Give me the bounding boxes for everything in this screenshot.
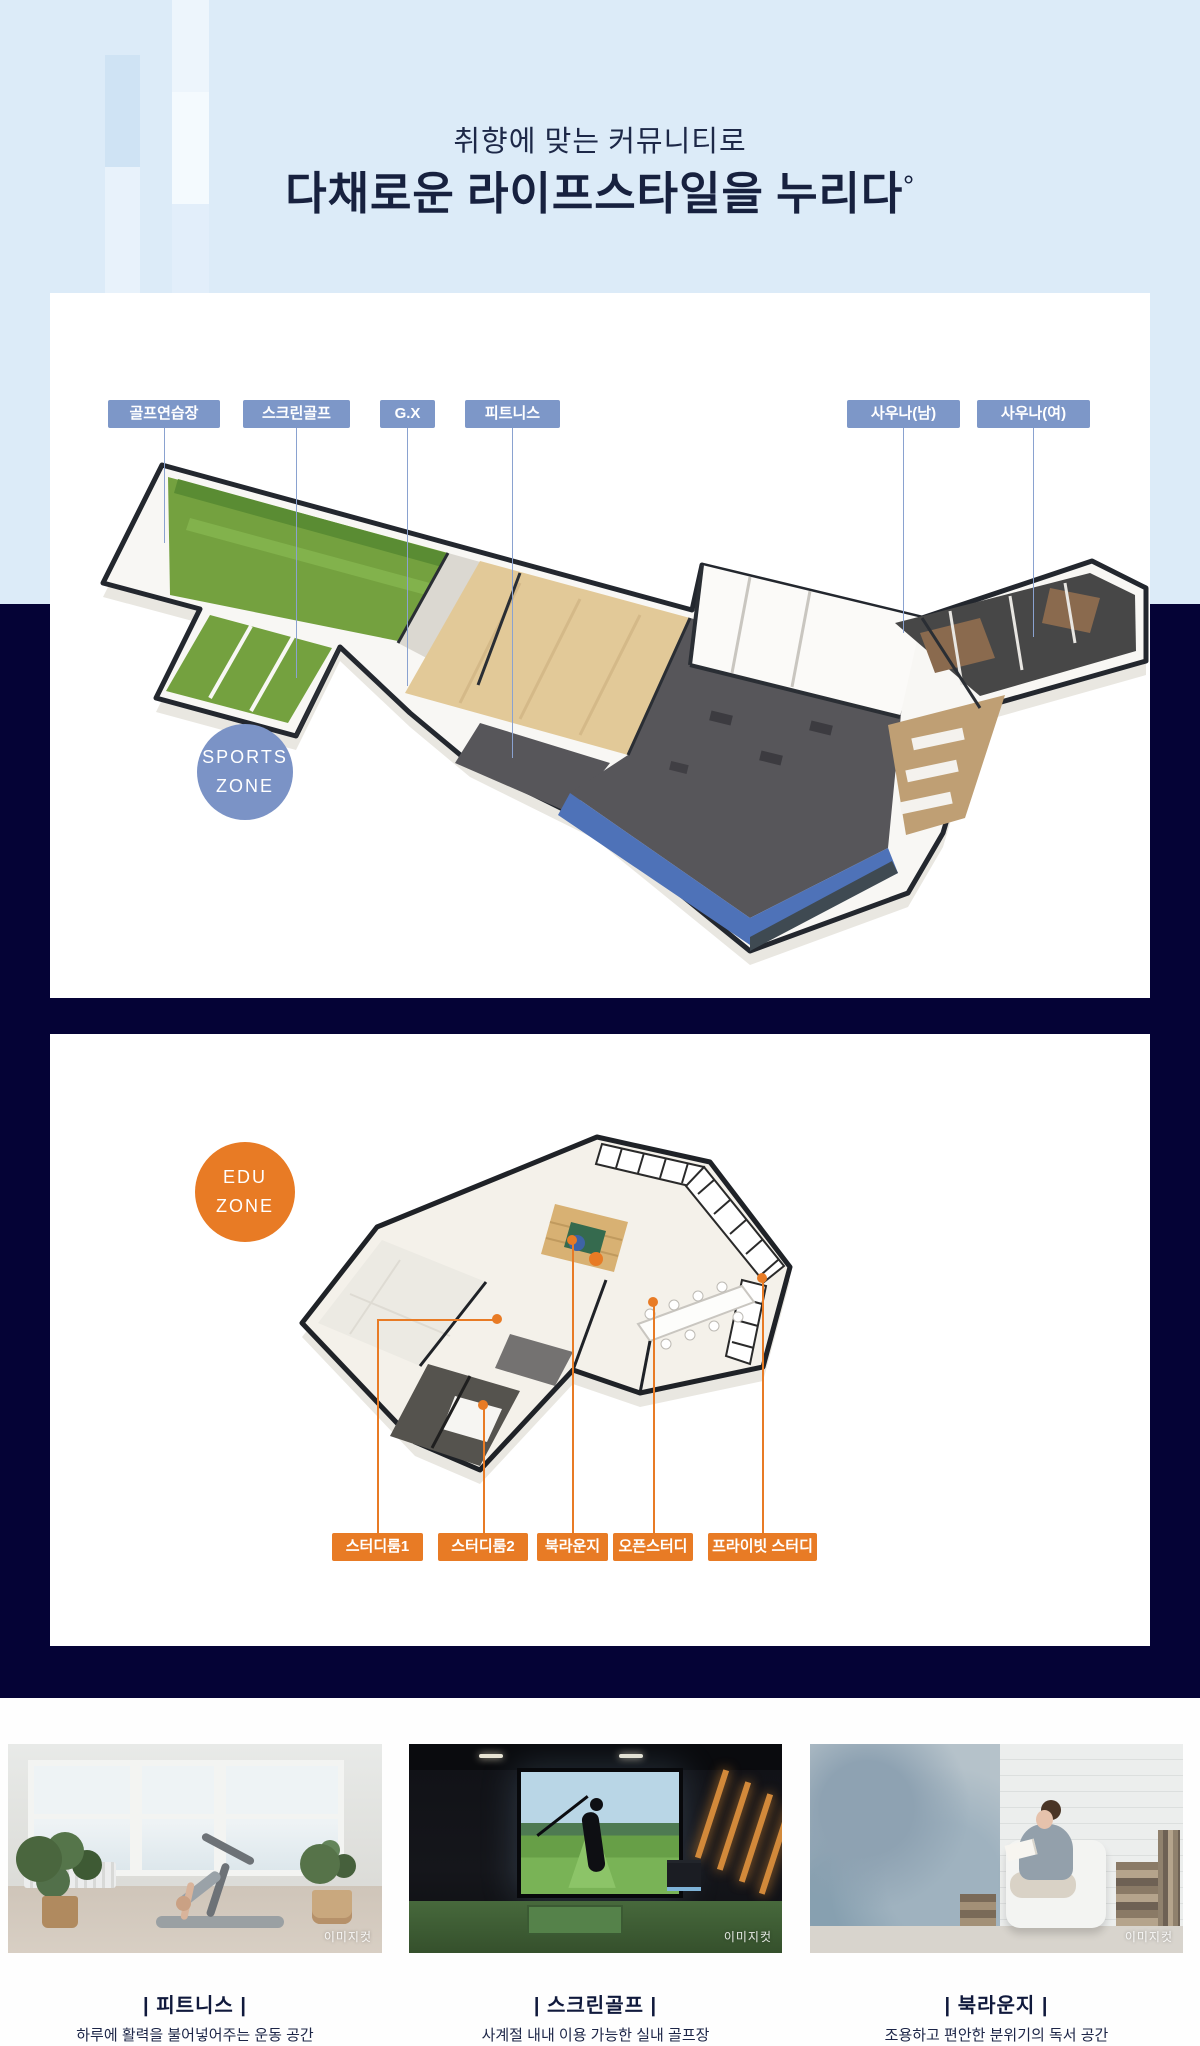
leader-dot-booklounge xyxy=(567,1235,577,1245)
reading-woman xyxy=(1036,1810,1053,1829)
badge-line: ZONE xyxy=(195,1192,295,1221)
card-desc-fitness: 하루에 활력을 불어넣어주는 운동 공간 xyxy=(8,2024,382,2046)
yoga-person xyxy=(176,1896,191,1911)
facility-label-sauna-men: 사우나(남) xyxy=(847,400,960,428)
facility-label-privatestudy: 프라이빗 스터디 xyxy=(708,1533,817,1561)
tee-mat xyxy=(527,1905,623,1935)
leader-line-fitness xyxy=(512,428,513,758)
badge-line: EDU xyxy=(195,1163,295,1192)
badge-line: SPORTS xyxy=(197,743,293,772)
plant xyxy=(300,1844,340,1884)
edu-zone-badge: EDU ZONE xyxy=(195,1142,295,1242)
page-subtitle: 취향에 맞는 커뮤니티로 xyxy=(0,118,1200,160)
leader-line-privatestudy xyxy=(762,1278,764,1533)
facility-label-booklounge: 북라운지 xyxy=(537,1533,608,1561)
golfer-silhouette xyxy=(590,1798,603,1811)
facility-label-openstudy: 오픈스터디 xyxy=(613,1533,693,1561)
page-title-text: 다채로운 라이프스타일을 누리다 xyxy=(285,169,903,219)
leader-dot-studyroom1 xyxy=(492,1314,502,1324)
leader-line-studyroom1 xyxy=(377,1319,379,1533)
photo-book-lounge: 이미지컷 xyxy=(810,1744,1183,1953)
leader-dot-openstudy xyxy=(648,1297,658,1307)
leader-line-sauna-men xyxy=(903,428,904,633)
yoga-mat xyxy=(156,1916,284,1928)
window xyxy=(136,1760,220,1876)
facility-label-gx: G.X xyxy=(380,400,435,428)
image-watermark: 이미지컷 xyxy=(324,1928,372,1945)
image-watermark: 이미지컷 xyxy=(724,1928,772,1945)
title-ring-mark: ° xyxy=(903,170,914,199)
leader-line-golf-range xyxy=(164,428,165,543)
ceiling-light xyxy=(479,1754,503,1758)
score-kiosk xyxy=(667,1860,701,1891)
sports-floorplan xyxy=(50,293,1150,998)
leader-line-studyroom2 xyxy=(483,1405,485,1533)
facility-label-studyroom2: 스터디룸2 xyxy=(438,1533,528,1561)
sports-zone-badge: SPORTS ZONE xyxy=(197,724,293,820)
leader-line-studyroom1-h xyxy=(377,1319,497,1321)
facility-label-sauna-women: 사우나(여) xyxy=(977,400,1090,428)
facility-label-fitness: 피트니스 xyxy=(465,400,560,428)
card-title-screen-golf: | 스크린골프 | xyxy=(409,1989,782,2015)
leader-line-gx xyxy=(407,428,408,686)
plant-pot xyxy=(42,1896,78,1928)
facility-label-studyroom1: 스터디룸1 xyxy=(332,1533,423,1561)
book-stack xyxy=(1116,1862,1158,1926)
badge-line: ZONE xyxy=(197,772,293,801)
card-title-fitness: | 피트니스 | xyxy=(8,1989,382,2015)
sports-zone-panel: 골프연습장 스크린골프 G.X 피트니스 사우나(남) 사우나(여) SPORT… xyxy=(50,293,1150,998)
image-watermark: 이미지컷 xyxy=(1125,1928,1173,1945)
card-title-book-lounge: | 북라운지 | xyxy=(810,1989,1183,2015)
deco-block xyxy=(172,0,209,92)
facility-label-golf-range: 골프연습장 xyxy=(108,400,220,428)
card-desc-book-lounge: 조용하고 편안한 분위기의 독서 공간 xyxy=(810,2024,1183,2046)
plant-pot xyxy=(312,1890,352,1924)
book-stack xyxy=(1158,1830,1180,1926)
page: 취향에 맞는 커뮤니티로 다채로운 라이프스타일을 누리다° xyxy=(0,0,1200,2046)
photo-fitness: 이미지컷 xyxy=(8,1744,382,1953)
card-desc-screen-golf: 사계절 내내 이용 가능한 실내 골프장 xyxy=(409,2024,782,2046)
facility-label-screen-golf: 스크린골프 xyxy=(243,400,350,428)
leader-line-sauna-women xyxy=(1033,428,1034,637)
leader-line-screen-golf xyxy=(296,428,297,678)
leader-line-openstudy xyxy=(653,1302,655,1533)
ceiling-light xyxy=(619,1754,643,1758)
leader-dot-privatestudy xyxy=(757,1273,767,1283)
page-title: 다채로운 라이프스타일을 누리다° xyxy=(0,157,1200,222)
leader-line-booklounge xyxy=(572,1240,574,1533)
photo-screen-golf: 이미지컷 xyxy=(409,1744,782,1953)
edu-zone-panel: 스터디룸1 스터디룸2 북라운지 오픈스터디 프라이빗 스터디 EDU ZONE xyxy=(50,1034,1150,1646)
ceiling xyxy=(409,1744,782,1770)
leader-dot-studyroom2 xyxy=(478,1400,488,1410)
book-stack xyxy=(960,1894,996,1926)
plant xyxy=(16,1836,62,1882)
